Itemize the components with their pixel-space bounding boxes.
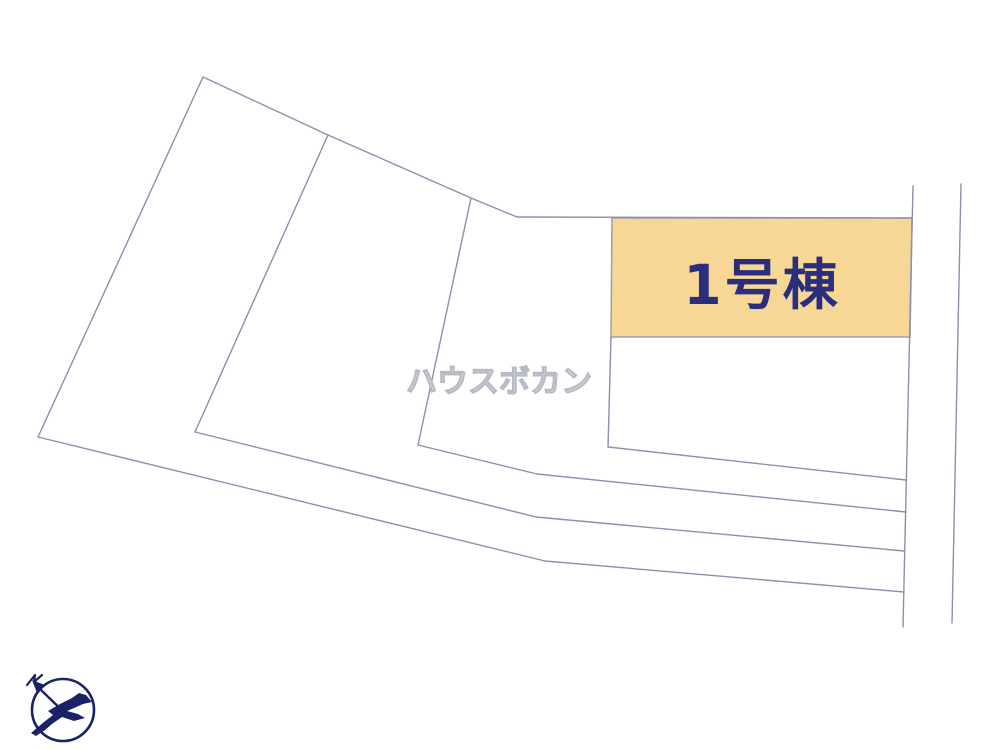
site-plan-canvas: 1号棟 ハウスボカン [0,0,1000,750]
compass-icon [22,669,104,750]
watermark-text: ハウスボカン [406,356,606,396]
lot-boundary-line [471,198,912,218]
lot-boundary-line [418,198,471,445]
lot-boundary-line [608,337,611,447]
lot-boundary-line [195,135,328,432]
road-edge-line [418,445,906,512]
parcel-1-label: 1号棟 [612,218,912,337]
lot-boundary-line [328,135,471,198]
lot-boundary-line [203,77,328,135]
road-edge-line [38,437,904,592]
road-edge-line [195,432,904,551]
lot-boundary-line [608,447,906,480]
lot-boundary-line [38,77,203,437]
road-edge-line [952,184,961,623]
bird-icon [31,693,92,736]
